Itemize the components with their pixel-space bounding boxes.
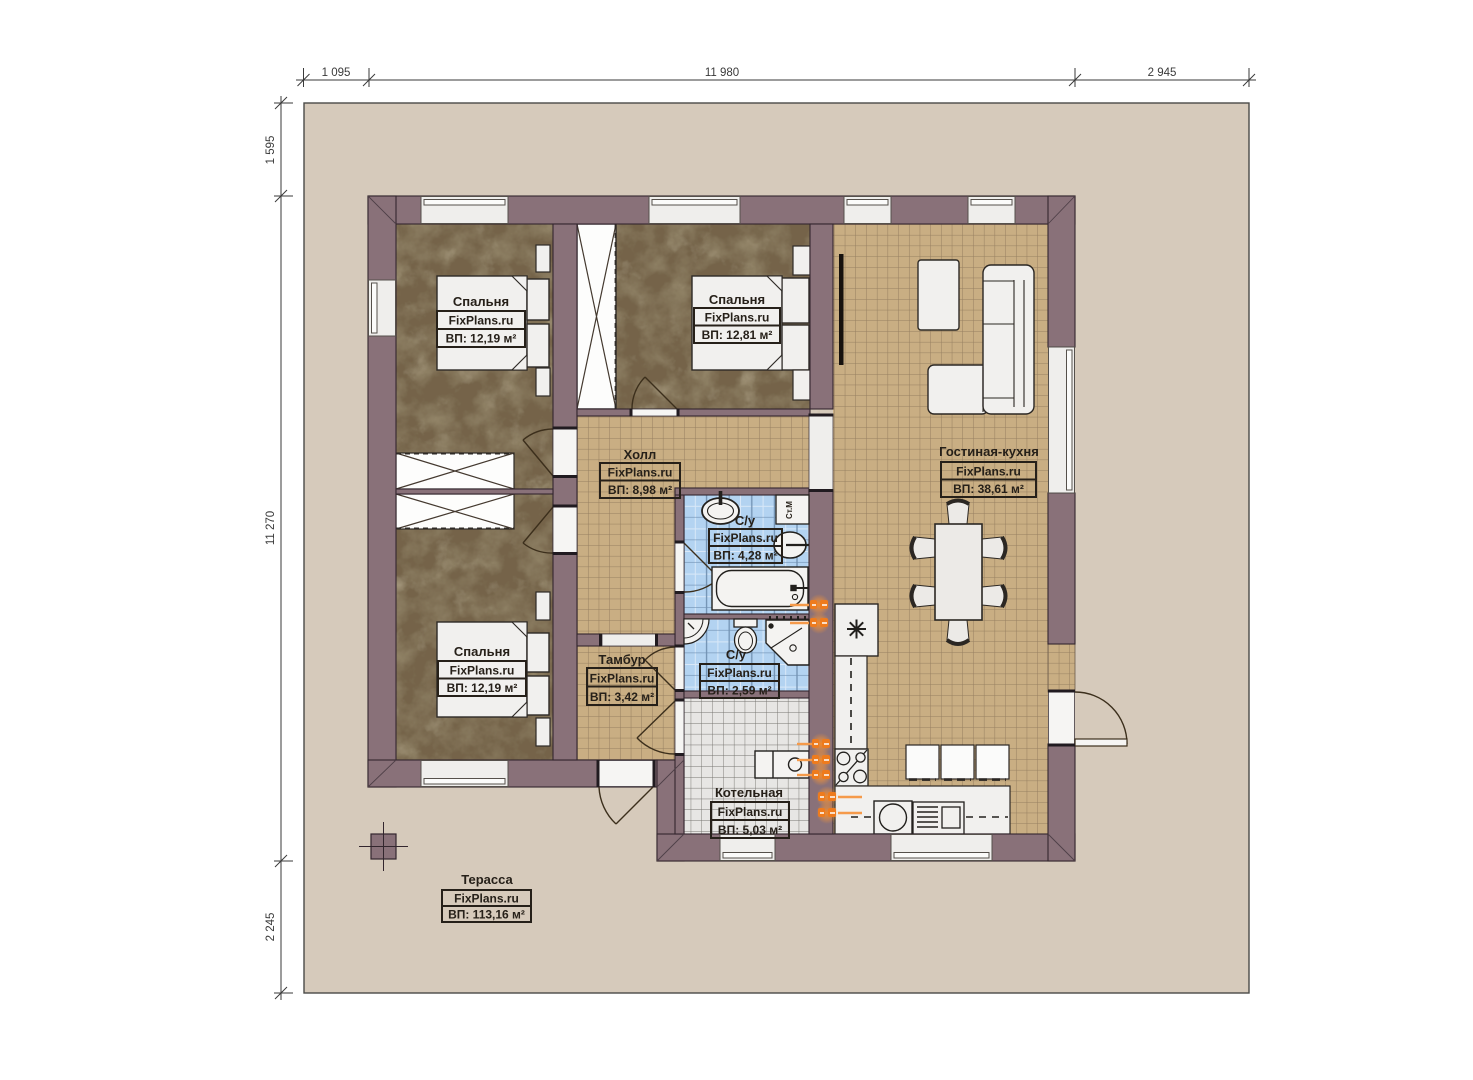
svg-text:ВП: 3,42 м²: ВП: 3,42 м² [590, 690, 654, 704]
svg-text:1 595: 1 595 [265, 136, 277, 165]
svg-text:ВП: 12,81 м²: ВП: 12,81 м² [702, 328, 773, 342]
svg-text:Спальня: Спальня [453, 294, 509, 309]
svg-text:11 270: 11 270 [265, 511, 277, 545]
svg-text:1 095: 1 095 [322, 67, 351, 79]
svg-text:Спальня: Спальня [454, 644, 510, 659]
svg-text:Ст.М: Ст.М [785, 501, 794, 519]
svg-text:FixPlans.ru: FixPlans.ru [705, 311, 770, 325]
svg-text:ВП: 12,19 м²: ВП: 12,19 м² [447, 681, 518, 695]
svg-text:ВП: 4,28 м²: ВП: 4,28 м² [713, 549, 777, 563]
svg-text:Холл: Холл [624, 447, 657, 462]
svg-text:FixPlans.ru: FixPlans.ru [590, 672, 655, 686]
svg-text:Гостиная-кухня: Гостиная-кухня [939, 444, 1039, 459]
svg-text:Тамбур: Тамбур [598, 652, 645, 667]
svg-text:Терасса: Терасса [461, 872, 513, 887]
svg-text:С/у: С/у [726, 647, 747, 662]
svg-text:11 980: 11 980 [705, 67, 739, 79]
svg-text:ВП: 8,98 м²: ВП: 8,98 м² [608, 483, 672, 497]
svg-text:ВП: 113,16 м²: ВП: 113,16 м² [448, 908, 525, 922]
svg-text:FixPlans.ru: FixPlans.ru [718, 805, 783, 819]
svg-text:ВП: 5,03 м²: ВП: 5,03 м² [718, 823, 782, 837]
svg-text:FixPlans.ru: FixPlans.ru [454, 892, 519, 906]
svg-text:С/у: С/у [735, 513, 756, 528]
svg-text:FixPlans.ru: FixPlans.ru [449, 314, 514, 328]
svg-text:ВП: 38,61 м²: ВП: 38,61 м² [953, 482, 1024, 496]
svg-text:2 945: 2 945 [1148, 67, 1177, 79]
svg-text:FixPlans.ru: FixPlans.ru [713, 531, 778, 545]
svg-text:FixPlans.ru: FixPlans.ru [608, 466, 673, 480]
svg-text:Котельная: Котельная [715, 785, 783, 800]
svg-text:ВП: 2,59 м²: ВП: 2,59 м² [707, 684, 771, 698]
svg-text:ВП: 12,19 м²: ВП: 12,19 м² [446, 332, 517, 346]
svg-text:Спальня: Спальня [709, 292, 765, 307]
svg-text:FixPlans.ru: FixPlans.ru [707, 666, 772, 680]
svg-text:2 245: 2 245 [265, 913, 277, 942]
svg-text:FixPlans.ru: FixPlans.ru [956, 465, 1021, 479]
svg-text:FixPlans.ru: FixPlans.ru [450, 664, 515, 678]
